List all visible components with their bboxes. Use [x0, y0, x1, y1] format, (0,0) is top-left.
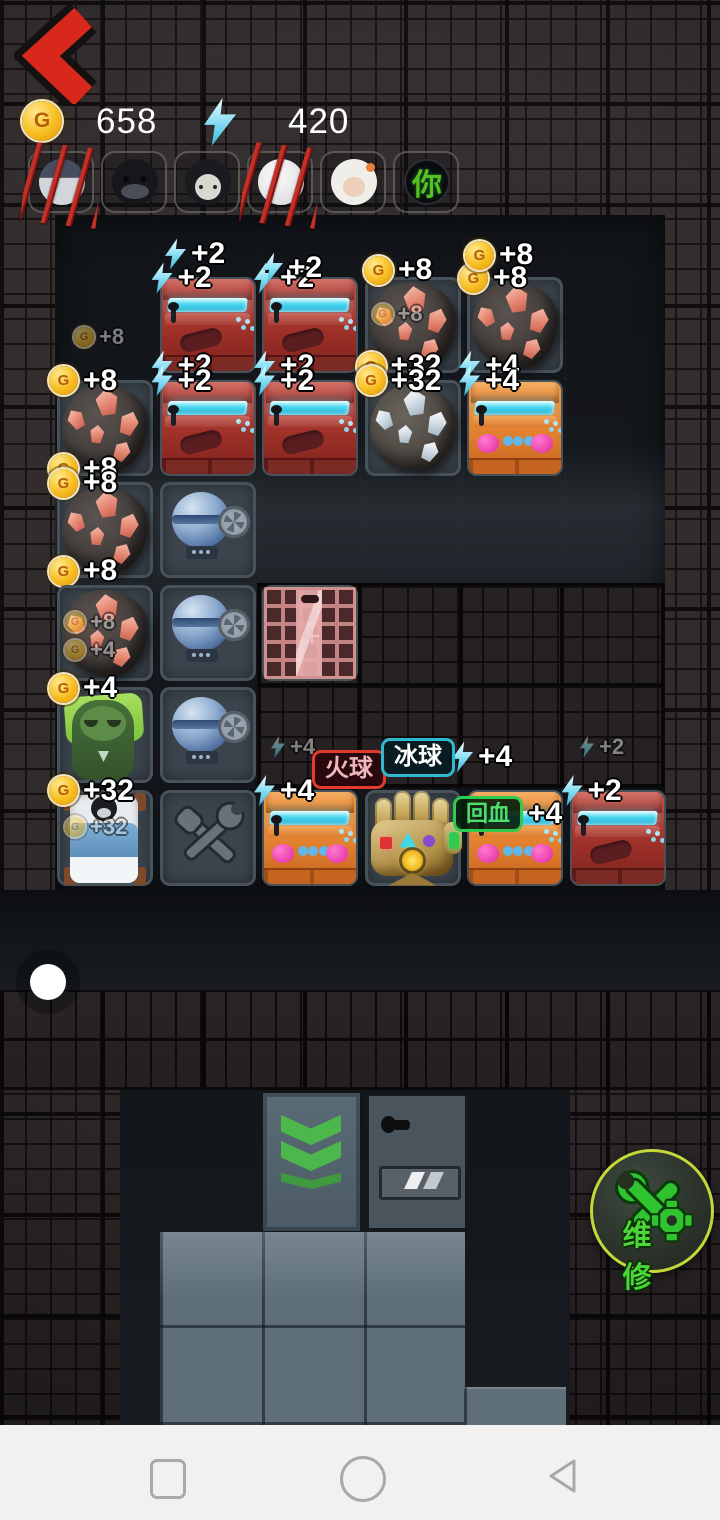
- cell-ore-red[interactable]: G+8G+32: [365, 277, 461, 373]
- avatar-portrait: [112, 159, 158, 205]
- chevron-down-icon: [281, 1173, 341, 1189]
- cell-orange-arcade[interactable]: +4: [467, 380, 563, 476]
- cell-ore-red[interactable]: G+8G+4: [57, 585, 153, 681]
- avatar-portrait: [331, 159, 377, 205]
- claw-marks-icon: [20, 141, 104, 229]
- recent-apps-button[interactable]: [150, 1459, 186, 1499]
- cell-door[interactable]: [262, 585, 358, 681]
- light-tile-small: [464, 1387, 566, 1425]
- avatar-portrait: 你: [404, 159, 450, 205]
- cell-zombie[interactable]: G+4: [57, 687, 153, 783]
- cell-tools[interactable]: [160, 790, 256, 886]
- flashlight-icon: [393, 1120, 410, 1130]
- avatar-char-4[interactable]: [247, 151, 313, 213]
- cell-red-arcade[interactable]: +2+2: [262, 277, 358, 373]
- android-navbar: [0, 1425, 720, 1520]
- cell-ore-red[interactable]: G+8+4: [467, 277, 563, 373]
- cell-ore-silver[interactable]: G+32: [365, 380, 461, 476]
- avatar-char-6[interactable]: 你: [393, 151, 459, 213]
- claw-marks-icon: [239, 141, 323, 229]
- avatar-overlay-text: 你: [412, 160, 442, 204]
- home-button[interactable]: [340, 1456, 386, 1502]
- flashlight-tile[interactable]: [366, 1093, 468, 1231]
- game-screen: G 658 420 你 +2+2+2+2G+8G+32G+8+4G+8G+8+2…: [0, 0, 720, 1520]
- avatar-char-5[interactable]: [320, 151, 386, 213]
- cell-washer[interactable]: [160, 687, 256, 783]
- cell-red-arcade[interactable]: +2+2: [160, 277, 256, 373]
- upgrade-chevron-tile[interactable]: [263, 1093, 360, 1231]
- avatar-portrait: [185, 159, 231, 205]
- touch-indicator[interactable]: [30, 964, 66, 1000]
- back-button[interactable]: [14, 4, 108, 104]
- cell-bed[interactable]: G+32G+32: [57, 790, 153, 886]
- repair-label: 维修: [623, 1212, 682, 1296]
- gold-amount: 658: [96, 102, 157, 142]
- iceball-chip: 冰球: [381, 738, 455, 777]
- chevron-down-icon: [281, 1141, 341, 1171]
- brick-wall: [0, 990, 720, 1090]
- fireball-chip: 火球: [312, 750, 386, 789]
- energy-amount: 420: [288, 102, 349, 142]
- cell-orange-arcade[interactable]: +4: [262, 790, 358, 886]
- cell-ore-red[interactable]: G+8G+8: [57, 482, 153, 578]
- gold-coin-icon: G: [22, 101, 62, 141]
- back-nav-button[interactable]: [544, 1456, 580, 1496]
- cell-red-arcade[interactable]: +2: [262, 380, 358, 476]
- light-tile-block: [160, 1232, 465, 1425]
- cell-orange-arcade[interactable]: 回血+4: [467, 790, 563, 886]
- energy-bolt-icon: [204, 98, 236, 146]
- progress-bar: [379, 1166, 461, 1200]
- avatar-char-1[interactable]: [28, 151, 94, 213]
- dark-corridor: [0, 890, 720, 990]
- repair-button[interactable]: 维修: [590, 1149, 714, 1273]
- cell-washer[interactable]: [160, 482, 256, 578]
- avatar-char-2[interactable]: [101, 151, 167, 213]
- cell-red-arcade[interactable]: +2: [570, 790, 666, 886]
- avatar-row: 你: [28, 151, 466, 213]
- cell-red-arcade[interactable]: +2: [160, 380, 256, 476]
- cell-washer[interactable]: [160, 585, 256, 681]
- avatar-char-3[interactable]: [174, 151, 240, 213]
- chevron-down-icon: [281, 1115, 341, 1145]
- cell-gauntlet[interactable]: [365, 790, 461, 886]
- cell-ore-red[interactable]: G+8G+8: [57, 380, 153, 476]
